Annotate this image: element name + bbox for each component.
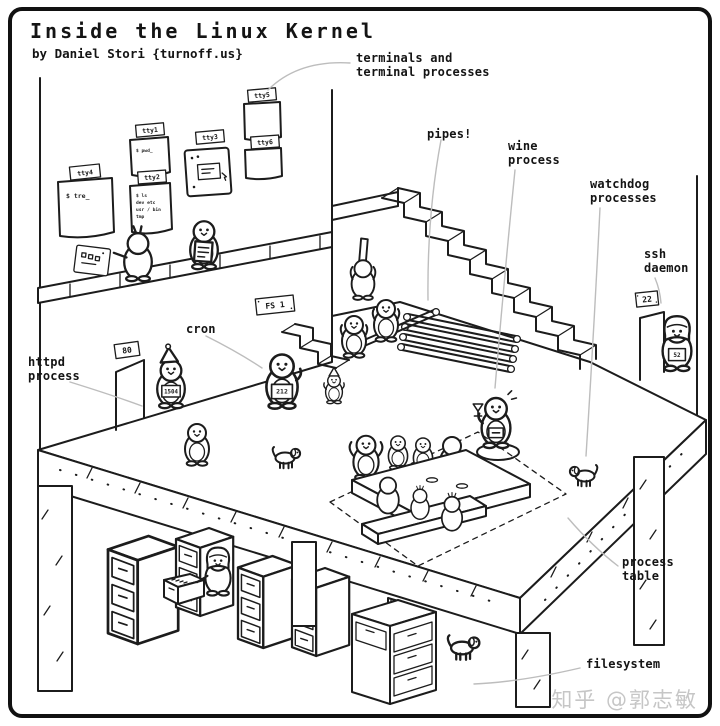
pipe-carrier-penguin — [373, 300, 400, 342]
penguin-on-landing — [351, 238, 376, 299]
tty5-tag: tty5 — [248, 88, 277, 102]
svg-text:tty2: tty2 — [144, 173, 160, 182]
label-cron: cron — [186, 322, 216, 336]
label-process-table: process — [622, 555, 674, 569]
httpd-penguin: 1504 — [157, 344, 185, 408]
filesystem-cabinet-open — [352, 598, 436, 704]
label-filesystem: filesystem — [586, 657, 660, 671]
pipe-carrier-penguin — [341, 316, 368, 358]
ssh-pid-badge: 52 — [673, 352, 681, 359]
wall-terminal-keyboard — [74, 245, 111, 276]
strolling-penguin — [185, 424, 209, 466]
comic-author: by Daniel Stori {turnoff.us} — [32, 46, 243, 61]
tty6-tag: tty6 — [251, 135, 280, 149]
label-ssh: ssh — [644, 247, 666, 261]
svg-text:dev etc: dev etc — [136, 200, 156, 206]
fs1-sign: FS 1 — [255, 295, 294, 315]
svg-text:$ ls: $ ls — [136, 193, 147, 199]
tty5-terminal-sheet — [244, 102, 281, 140]
svg-text:process: process — [508, 153, 560, 167]
svg-text:tmp: tmp — [136, 214, 145, 220]
svg-text:terminal processes: terminal processes — [356, 65, 490, 79]
tty3-tag: tty3 — [196, 130, 225, 144]
tty3-graphical-terminal — [184, 148, 231, 197]
comic-panel: Inside the Linux Kernel by Daniel Stori … — [0, 0, 720, 726]
port-22-sign: 22 — [635, 291, 658, 307]
linux-kernel-comic: Inside the Linux Kernel by Daniel Stori … — [0, 0, 720, 726]
svg-text:table: table — [622, 569, 659, 583]
tty1-tag: tty1 — [136, 123, 165, 137]
label-httpd: httpd — [28, 355, 65, 369]
table-penguin-back — [377, 478, 399, 514]
tty4-screen-text: $ tre_ — [66, 192, 90, 200]
watchdog-dog-basement — [448, 635, 480, 659]
svg-text:daemon: daemon — [644, 261, 689, 275]
svg-text:tty3: tty3 — [202, 133, 218, 142]
tty1-screen-text: $ pwd_ — [136, 148, 153, 154]
watermark: 知乎 @郭志敏 — [551, 688, 698, 712]
ssh-daemon-penguin: 52 — [663, 316, 692, 371]
svg-text:usr / bin: usr / bin — [136, 207, 161, 213]
port-80-sign: 80 — [114, 341, 140, 358]
file-cabinet — [238, 556, 298, 648]
cron-pid-badge: 212 — [276, 388, 288, 396]
tty2-tag: tty2 — [138, 170, 167, 184]
svg-text:processes: processes — [590, 191, 657, 205]
svg-text:process: process — [28, 369, 80, 383]
table-penguin — [388, 436, 407, 469]
svg-text:tty5: tty5 — [254, 91, 270, 100]
party-hat — [161, 348, 178, 363]
terminal-wall: $ tre_ tty4 $ pwd_ tty1 $ ls dev etc usr… — [58, 88, 282, 238]
label-pipes: pipes! — [427, 127, 472, 141]
comic-title: Inside the Linux Kernel — [30, 19, 376, 43]
svg-text:22: 22 — [642, 294, 653, 304]
tty4-tag: tty4 — [69, 164, 100, 180]
ssh-door: 22 52 — [635, 291, 691, 380]
tty6-terminal-sheet — [245, 148, 282, 179]
httpd-pid-badge: 1504 — [164, 390, 178, 396]
label-terminals: terminals and — [356, 51, 453, 65]
svg-text:tty6: tty6 — [257, 138, 273, 147]
label-watchdog: watchdog — [590, 177, 649, 191]
svg-text:tty4: tty4 — [77, 168, 93, 178]
terminal-penguin-reading — [190, 221, 218, 269]
tty4-terminal-sheet — [58, 178, 114, 237]
svg-text:80: 80 — [122, 345, 133, 355]
svg-text:tty1: tty1 — [142, 126, 158, 135]
label-wine: wine — [508, 139, 538, 153]
